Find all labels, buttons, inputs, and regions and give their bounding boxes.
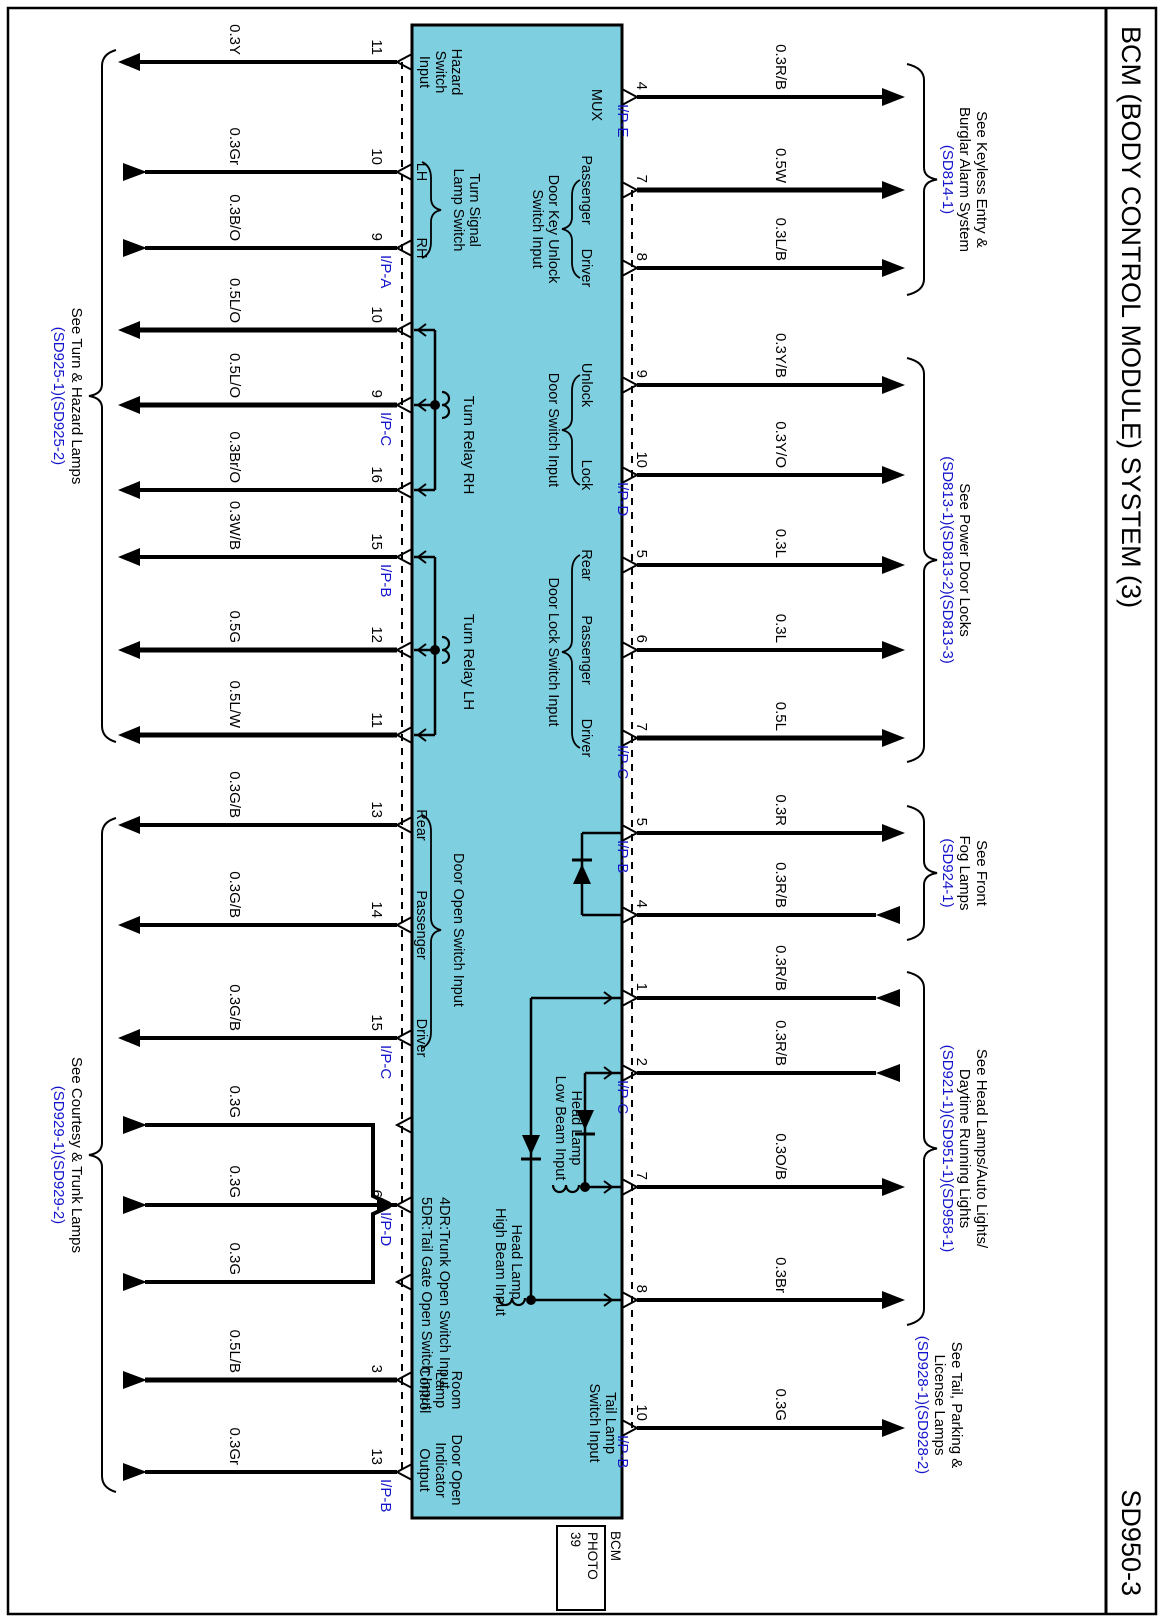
pin-connector-ref: I/P-B [614, 1435, 631, 1468]
wire-gauge-color: 0.3G [226, 1085, 243, 1118]
destination-brace-icon [907, 972, 937, 1325]
destination-ref: (SD814-1) [939, 145, 956, 214]
wiring-diagram-page: BCM (BODY CONTROL MODULE) SYSTEM (3)SD95… [0, 0, 1164, 1622]
pin-number: 10 [368, 306, 385, 323]
pin-chevron-icon [397, 240, 412, 256]
wire-gauge-color: 0.5L [772, 702, 789, 731]
pin-chevron-icon [622, 1420, 637, 1436]
photo-tag-line: PHOTO [585, 1532, 600, 1580]
pin-connector-ref: I/P-A [377, 255, 394, 288]
pin-chevron-icon [397, 482, 412, 498]
pin-connector-ref: I/P-B [377, 1479, 394, 1512]
destination-label: See Tail, Parking & [948, 1342, 965, 1468]
wire-arrow-icon [118, 816, 140, 834]
headlamp-label: Head Lamp [508, 1225, 524, 1300]
pin-group-name: Driver [413, 1019, 429, 1058]
destination-brace-icon [907, 806, 937, 940]
wire-arrow-icon [118, 548, 140, 566]
destination-ref: (SD925-1)(SD925-2) [50, 327, 67, 465]
wire-gauge-color: 0.5G [226, 610, 243, 643]
wire-gauge-color: 0.3R/B [772, 862, 789, 908]
junction-dot [430, 400, 440, 410]
pin-number: 9 [368, 390, 385, 398]
pin-group-label: Output [416, 1448, 432, 1492]
pin-number: 14 [368, 901, 385, 918]
wire-arrow-icon [882, 181, 905, 199]
pin-connector-ref: I/P-E [614, 104, 631, 137]
wire-arrow-icon [876, 989, 900, 1007]
wire-arrow-icon [123, 1371, 147, 1389]
pin-chevron-icon [622, 825, 637, 841]
pin-number: 9 [368, 233, 385, 241]
pin-number: 7 [633, 723, 650, 731]
pin-number: 10 [633, 451, 650, 468]
pin-connector-ref: I/P-D [614, 482, 631, 516]
pin-number: 15 [368, 1014, 385, 1031]
wire-arrow-icon [882, 1178, 905, 1196]
pin-chevron-icon [622, 990, 637, 1006]
wire-gauge-color: 0.3L [772, 529, 789, 558]
wire-arrow-icon [118, 481, 140, 499]
wire-gauge-color: 0.3R/B [772, 945, 789, 991]
wire-arrow-icon [123, 1463, 147, 1481]
pin-group-name: Driver [578, 249, 594, 288]
destination-ref: (SD928-1)(SD928-2) [914, 1336, 931, 1474]
headlamp-label: Low Beam Input [552, 1076, 568, 1181]
bcm-system-diagram: BCM (BODY CONTROL MODULE) SYSTEM (3)SD95… [0, 0, 1164, 1622]
photo-tag-line: 39 [568, 1532, 583, 1547]
destination-ref: (SD813-1)(SD813-2)(SD813-3) [939, 456, 956, 664]
junction-dot [430, 645, 440, 655]
wire-arrow-icon [882, 376, 905, 394]
wire-arrow-icon [882, 729, 905, 747]
pin-number: 2 [633, 1058, 650, 1066]
wire-arrow-icon [882, 1419, 905, 1437]
wire-gauge-color: 0.3G [226, 1242, 243, 1275]
wire-gauge-color: 0.3Y/O [772, 421, 789, 468]
pin-chevron-icon [397, 1464, 412, 1480]
pin-number: 11 [368, 712, 385, 728]
pin-number: 13 [368, 1448, 385, 1465]
wire-gauge-color: 0.3O/B [772, 1133, 789, 1180]
relay-label: Turn Relay LH [460, 614, 477, 710]
destination-label: Fog Lamps [956, 835, 973, 910]
destination-label: See Keyless Entry & [973, 111, 990, 248]
pin-chevron-icon [397, 727, 412, 743]
pin-chevron-icon [397, 1274, 412, 1290]
pin-group-label: Switch Input [586, 1384, 602, 1463]
destination-brace-icon [907, 64, 937, 295]
destination-brace-icon [89, 818, 116, 1492]
wire-gauge-color: 0.3Br [772, 1257, 789, 1293]
pin-chevron-icon [397, 917, 412, 933]
pin-connector-ref: I/P-B [614, 840, 631, 873]
wire-gauge-color: 0.3R/B [772, 1020, 789, 1066]
destination-label: See Power Door Locks [956, 483, 973, 636]
pin-group-label: Lamp Switch [450, 168, 466, 251]
destination-label: See Turn & Hazard Lamps [68, 308, 85, 485]
page-title: BCM (BODY CONTROL MODULE) SYSTEM (3) [1116, 26, 1146, 608]
pin-chevron-icon [397, 322, 412, 338]
pin-group-name: Passenger [578, 615, 594, 684]
pin-number: 8 [633, 1285, 650, 1293]
relay-label: Turn Relay RH [460, 396, 477, 495]
pin-chevron-icon [622, 1292, 637, 1308]
wire-arrow-icon [882, 259, 905, 277]
pin-chevron-icon [622, 557, 637, 573]
destination-label: See Head Lamps/Auto Lights/ [973, 1049, 990, 1249]
pin-group-name: Rear [413, 809, 429, 841]
pin-connector-ref: I/P-D [377, 1212, 394, 1246]
headlamp-label: Head Lamp [568, 1091, 584, 1166]
pin-number: 11 [368, 39, 385, 55]
pin-group-name: Driver [578, 719, 594, 758]
pin-number: 5 [633, 818, 650, 826]
wire-gauge-color: 0.3W/B [226, 501, 243, 550]
pin-chevron-icon [622, 642, 637, 658]
wire-arrow-icon [882, 466, 905, 484]
wire-gauge-color: 0.5L/O [226, 278, 243, 323]
destination-label: See Front [973, 840, 990, 907]
wire-gauge-color: 0.5W [772, 148, 789, 184]
wire-gauge-color: 0.3Y [226, 24, 243, 55]
pin-number: 10 [368, 148, 385, 165]
pin-group-label: MUX [588, 89, 604, 122]
pin-group-name: Passenger [413, 890, 429, 959]
wire-gauge-color: 0.5L/B [226, 1330, 243, 1373]
pin-group-label: Door Lock Switch Input [545, 577, 561, 726]
wire-gauge-color: 0.3Br/O [226, 431, 243, 483]
pin-number: 6 [633, 635, 650, 643]
wire-arrow-icon [882, 556, 905, 574]
pin-group-label: Switch [432, 51, 448, 94]
pin-number: 1 [633, 983, 650, 991]
pin-group-name: Lock [578, 460, 594, 491]
wire-gauge-color: 0.3Y/B [772, 333, 789, 378]
wire-arrow-icon [882, 824, 905, 842]
pin-group-name: Rear [578, 549, 594, 581]
wire-gauge-color: 0.3R [772, 794, 789, 826]
pin-chevron-icon [397, 1197, 412, 1213]
wire-gauge-color: 0.3G/B [226, 871, 243, 918]
pin-group-label: Door Open [448, 1435, 464, 1506]
wire-arrow-icon [118, 1029, 140, 1047]
junction-dot [526, 1295, 536, 1305]
pin-chevron-icon [622, 182, 637, 198]
pin-number: 6 [368, 1190, 385, 1198]
pin-connector-ref: I/P-C [377, 412, 394, 446]
pin-number: 4 [633, 900, 650, 908]
pin-group-name: Unlock [578, 363, 594, 408]
pin-group-name: Passenger [578, 155, 594, 224]
pin-chevron-icon [397, 1117, 412, 1133]
pin-chevron-icon [397, 642, 412, 658]
pin-number: 7 [633, 1172, 650, 1180]
wire-gauge-color: 0.5L/O [226, 353, 243, 398]
wire-gauge-color: 0.5L/W [226, 680, 243, 728]
wire-gauge-color: 0.3B/O [226, 194, 243, 241]
photo-tag-title: BCM [608, 1531, 623, 1561]
pin-group-label: Turn Signal [466, 173, 482, 247]
destination-ref: (SD929-1)(SD929-2) [50, 1086, 67, 1224]
wire-arrow-icon [876, 906, 900, 924]
pin-group-label: Switch Input [529, 190, 545, 269]
destination-label: License Lamps [931, 1355, 948, 1456]
pin-chevron-icon [622, 1065, 637, 1081]
wire-arrow-icon [118, 321, 140, 339]
pin-connector-ref: I/P-C [377, 1045, 394, 1079]
wire-gauge-color: 0.3R/B [772, 44, 789, 90]
destination-brace-icon [907, 358, 937, 762]
wire-arrow-icon [123, 239, 147, 257]
pin-chevron-icon [622, 907, 637, 923]
pin-chevron-icon [397, 817, 412, 833]
pin-chevron-icon [622, 467, 637, 483]
destination-label: See Courtesy & Trunk Lamps [68, 1057, 85, 1253]
pin-group-label: Door Open Switch Input [450, 853, 466, 1007]
pin-number: 15 [368, 533, 385, 550]
pin-number: 4 [633, 82, 650, 90]
wire-arrow-icon [118, 396, 140, 414]
pin-group-label: Indicator [432, 1442, 448, 1498]
wire-arrow-icon [118, 726, 140, 744]
pin-connector-ref: I/P-C [614, 745, 631, 779]
wire-arrow-icon [882, 1291, 905, 1309]
pin-chevron-icon [622, 377, 637, 393]
page-code: SD950-3 [1116, 1489, 1146, 1596]
pin-chevron-icon [397, 397, 412, 413]
destination-label: Burglar Alarm System [956, 107, 973, 252]
pin-group-label: Hazard [448, 49, 464, 96]
destination-ref: (SD921-1)(SD951-1)(SD958-1) [939, 1045, 956, 1253]
wire-arrow-icon [123, 1273, 147, 1291]
wire-gauge-color: 0.3G/B [226, 771, 243, 818]
headlamp-label: High Beam Input [492, 1208, 508, 1316]
pin-number: 12 [368, 626, 385, 643]
pin-chevron-icon [622, 89, 637, 105]
pin-number: 16 [368, 466, 385, 483]
wire-arrow-icon [882, 88, 905, 106]
pin-chevron-icon [622, 730, 637, 746]
pin-number: 13 [368, 801, 385, 818]
wire-arrow-icon [118, 641, 140, 659]
pin-number: 8 [633, 253, 650, 261]
wire-gauge-color: 0.3Gr [226, 1427, 243, 1465]
pin-connector-ref: I/P-B [377, 564, 394, 597]
pin-group-label: Door Key Unlock [545, 175, 561, 285]
pin-group-label: Room [448, 1371, 464, 1410]
pin-chevron-icon [397, 54, 412, 70]
pin-group-label: Door Switch Input [545, 373, 561, 487]
wire-arrow-icon [882, 641, 905, 659]
wire-gauge-color: 0.3Gr [226, 127, 243, 165]
pin-group-label: Lamp [432, 1372, 448, 1408]
wire-arrow-icon [123, 1196, 147, 1214]
pin-chevron-icon [397, 549, 412, 565]
pin-chevron-icon [397, 1372, 412, 1388]
pin-group-label: Input [416, 56, 432, 88]
wire-gauge-color: 0.3G [772, 1388, 789, 1421]
wire-gauge-color: 0.3L [772, 614, 789, 643]
wire-arrow-icon [876, 1064, 900, 1082]
pin-chevron-icon [397, 1030, 412, 1046]
wire-arrow-icon [118, 916, 140, 934]
pin-number: 10 [633, 1404, 650, 1421]
rotated-landscape-canvas: BCM (BODY CONTROL MODULE) SYSTEM (3)SD95… [0, 0, 1164, 1622]
pin-group-label: Control [416, 1367, 432, 1414]
wire-gauge-color: 0.3G/B [226, 984, 243, 1031]
wire-gauge-color: 0.3G [226, 1165, 243, 1198]
destination-label: Daytime Running Lights [956, 1069, 973, 1228]
pin-number: 7 [633, 175, 650, 183]
pin-chevron-icon [622, 260, 637, 276]
pin-number: 9 [633, 370, 650, 378]
pin-connector-ref: I/P-C [614, 1080, 631, 1114]
wire [145, 1125, 390, 1204]
destination-brace-icon [89, 50, 116, 742]
wire-arrow-icon [123, 163, 147, 181]
wire-gauge-color: 0.3L/B [772, 218, 789, 261]
wire-arrow-icon [118, 53, 140, 71]
wire-arrow-icon [123, 1116, 147, 1134]
pin-chevron-icon [397, 164, 412, 180]
destination-ref: (SD924-1) [939, 838, 956, 907]
pin-chevron-icon [622, 1179, 637, 1195]
pin-number: 5 [633, 550, 650, 558]
wire [145, 1206, 390, 1282]
pin-number: 3 [368, 1365, 385, 1373]
pin-group-label: 4DR:Trunk Open Switch Input [436, 1197, 452, 1389]
junction-dot [580, 1182, 590, 1192]
